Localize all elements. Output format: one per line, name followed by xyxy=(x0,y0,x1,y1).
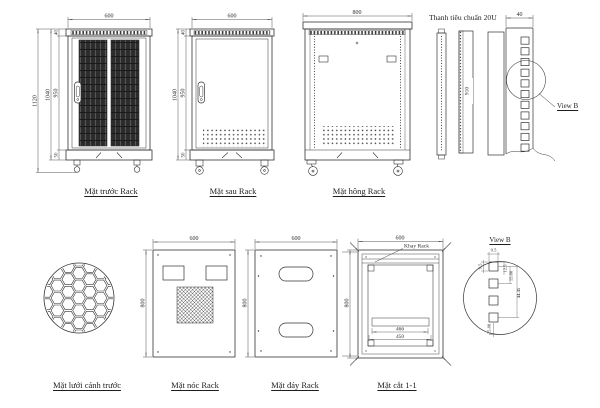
roof-cable-cutout-left xyxy=(163,266,184,280)
mesh-hexagon-pattern xyxy=(40,255,117,341)
base-width-dimension: 600 xyxy=(255,236,337,249)
back-base-panel xyxy=(190,150,274,160)
side-top-vent-strip xyxy=(309,31,405,35)
side-view: 800 xyxy=(303,10,412,175)
svg-text:800: 800 xyxy=(353,10,362,16)
section-tray xyxy=(372,318,429,326)
svg-text:50: 50 xyxy=(55,152,60,158)
rail-profile-face xyxy=(488,28,555,161)
svg-text:600: 600 xyxy=(228,14,237,20)
back-width-dimension: 600 xyxy=(192,14,272,29)
rack-technical-drawing: 600 1120 1040 950 40 50 xyxy=(0,0,600,408)
svg-text:1120: 1120 xyxy=(33,95,39,107)
front-width-dimension: 600 xyxy=(68,14,150,29)
rail-profile-edge: 910 xyxy=(459,31,473,153)
front-view-label: Mặt trước Rack xyxy=(84,186,137,196)
section-view-label: Mặt cắt 1-1 xyxy=(377,380,416,390)
detail-leader-line xyxy=(539,94,555,108)
roof-view: 600 800 xyxy=(141,236,236,357)
front-top-vent-strip xyxy=(71,31,147,35)
svg-text:600: 600 xyxy=(105,14,114,20)
svg-text:450: 450 xyxy=(396,334,404,340)
back-view: 600 1040 950 40 50 xyxy=(173,14,275,175)
svg-text:466: 466 xyxy=(396,327,404,333)
rail-view: 910 40 xyxy=(437,12,555,161)
view-b-detail: 9.5 9.5 12.5 15.88 44.45 15.88 xyxy=(464,248,537,338)
front-height-dimensions: 1120 1040 950 40 50 xyxy=(33,29,77,173)
front-base-marks xyxy=(96,153,122,159)
svg-text:600: 600 xyxy=(292,236,301,242)
svg-text:800: 800 xyxy=(345,299,351,308)
rail-title: Thanh tiêu chuẩn 20U xyxy=(429,13,497,22)
rail-view-b-callout-label: View B xyxy=(557,102,578,110)
mesh-view-label: Mặt lưới cánh trước xyxy=(53,380,121,390)
mesh-detail-view xyxy=(40,255,117,341)
back-casters xyxy=(196,160,269,174)
svg-text:50: 50 xyxy=(182,152,187,158)
svg-text:600: 600 xyxy=(190,236,199,242)
rail-flange-dimension: 40 xyxy=(506,12,533,27)
svg-text:800: 800 xyxy=(243,299,249,308)
svg-text:15.88: 15.88 xyxy=(487,323,492,334)
roof-width-dimension: 600 xyxy=(153,236,235,249)
rail-square-holes xyxy=(521,37,529,151)
side-latch-right xyxy=(387,56,396,62)
svg-text:15.88: 15.88 xyxy=(509,270,514,281)
svg-text:9.5: 9.5 xyxy=(491,248,497,253)
side-top-lid xyxy=(303,22,412,29)
side-screw-mark xyxy=(356,42,358,44)
front-door-handle xyxy=(75,82,82,103)
svg-text:40: 40 xyxy=(182,30,187,36)
base-cable-slot-top xyxy=(279,267,313,281)
base-outline xyxy=(255,250,337,357)
side-depth-dimension: 800 xyxy=(303,10,412,21)
section-outline xyxy=(358,250,443,358)
section-view: Khay Rack 466 450 600 800 xyxy=(342,236,451,366)
svg-text:Khay Rack: Khay Rack xyxy=(404,244,429,250)
rail-break-line xyxy=(506,148,555,161)
side-vent-perforation xyxy=(323,126,395,146)
back-height-dimensions: 1040 950 40 50 xyxy=(173,29,191,160)
view-b-square-holes xyxy=(489,262,498,322)
view-b-title: View B xyxy=(489,236,510,244)
svg-text:40: 40 xyxy=(517,12,523,18)
drawing-linework: 600 1120 1040 950 40 50 xyxy=(0,0,600,408)
svg-text:950: 950 xyxy=(181,89,187,98)
svg-text:910: 910 xyxy=(465,87,471,96)
back-view-label: Mặt sau Rack xyxy=(210,186,257,196)
base-view: 600 800 xyxy=(243,236,338,357)
back-top-vent-strip xyxy=(194,31,270,35)
roof-cable-cutout-right xyxy=(206,266,227,280)
section-depth-dimension: 800 xyxy=(345,250,358,358)
front-casters xyxy=(74,160,140,172)
side-latch-left xyxy=(319,56,328,62)
roof-depth-dimension: 800 xyxy=(141,250,153,357)
back-door-handle xyxy=(198,82,205,103)
roof-fan-vent xyxy=(177,287,213,323)
back-base-marks xyxy=(222,153,242,159)
front-door-mesh-right xyxy=(111,40,139,146)
side-base-marks xyxy=(337,153,378,159)
svg-text:40: 40 xyxy=(55,30,60,36)
side-view-label: Mặt hông Rack xyxy=(333,186,385,196)
mesh-detail-boundary xyxy=(44,263,114,333)
svg-text:9.5: 9.5 xyxy=(478,263,483,269)
view-b-dimensions: 9.5 9.5 12.5 15.88 44.45 15.88 xyxy=(478,248,522,338)
section-width-dimension: 600 xyxy=(358,236,443,250)
svg-text:800: 800 xyxy=(141,299,147,308)
rail-profile-side xyxy=(437,29,446,159)
svg-text:44.45: 44.45 xyxy=(516,287,521,298)
section-inner-dimensions: 466 450 xyxy=(369,327,431,342)
view-b-boundary xyxy=(464,262,537,335)
svg-text:1040: 1040 xyxy=(46,89,52,101)
back-vent-perforation xyxy=(203,128,265,147)
front-door-mesh-left xyxy=(79,40,107,146)
base-view-label: Mặt đáy Rack xyxy=(271,380,319,390)
svg-text:600: 600 xyxy=(396,236,405,242)
side-casters xyxy=(307,160,403,175)
svg-text:12.5: 12.5 xyxy=(503,264,508,273)
base-cable-slot-bottom xyxy=(279,323,313,337)
front-view: 600 1120 1040 950 40 50 xyxy=(33,14,153,173)
front-base-panel xyxy=(66,150,152,160)
base-depth-dimension: 800 xyxy=(243,250,255,357)
svg-text:950: 950 xyxy=(54,89,60,98)
roof-view-label: Mặt nóc Rack xyxy=(171,380,219,390)
svg-text:1040: 1040 xyxy=(173,89,179,101)
